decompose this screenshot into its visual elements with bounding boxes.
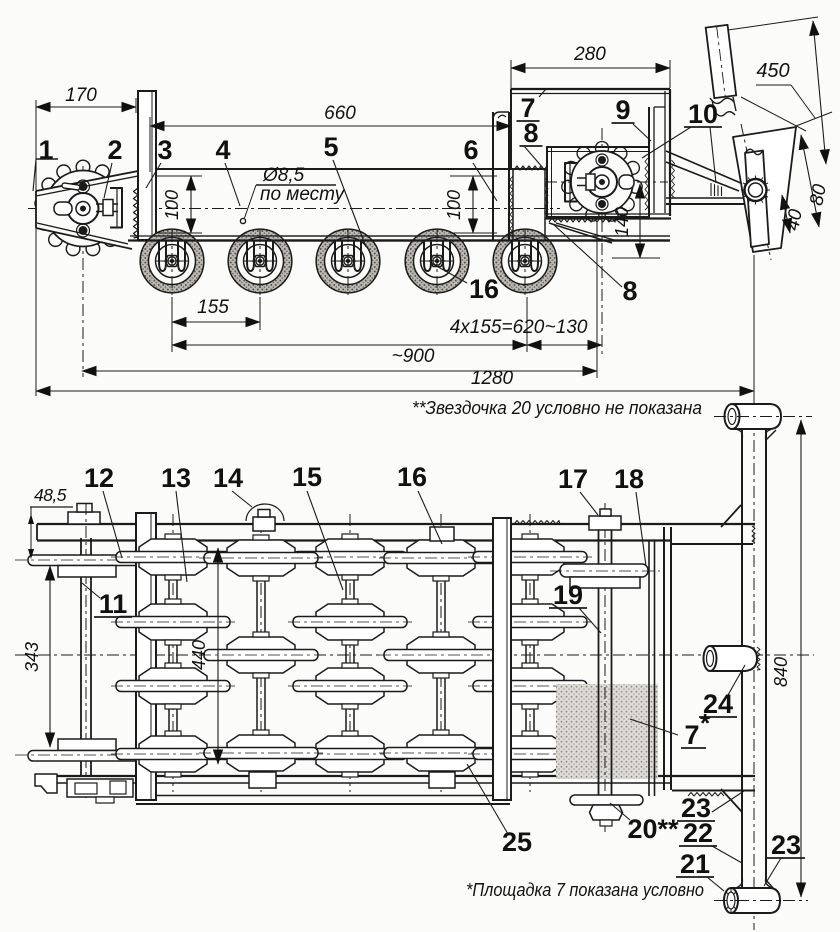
svg-text:11: 11 xyxy=(99,589,128,619)
svg-text:170: 170 xyxy=(65,85,97,106)
svg-text:450: 450 xyxy=(756,60,789,82)
svg-text:4: 4 xyxy=(215,135,230,165)
svg-text:155: 155 xyxy=(197,297,229,318)
svg-text:660: 660 xyxy=(324,103,356,124)
svg-text:21: 21 xyxy=(680,849,710,879)
svg-text:48,5: 48,5 xyxy=(34,485,67,505)
svg-text:16: 16 xyxy=(469,274,499,304)
svg-text:4x155=620: 4x155=620 xyxy=(450,317,545,338)
svg-text:100: 100 xyxy=(444,190,464,220)
svg-text:по месту: по месту xyxy=(260,184,346,205)
svg-text:**Звездочка 20 условно не пока: **Звездочка 20 условно не показана xyxy=(412,397,702,418)
svg-text:7: 7 xyxy=(684,720,699,750)
svg-text:100: 100 xyxy=(162,190,182,220)
svg-text:*: * xyxy=(700,708,711,738)
svg-text:*Площадка 7 показана условно: *Площадка 7 показана условно xyxy=(466,879,704,900)
svg-text:~900: ~900 xyxy=(392,346,435,367)
svg-text:8: 8 xyxy=(622,276,637,306)
svg-text:3: 3 xyxy=(157,135,172,165)
svg-text:1280: 1280 xyxy=(471,368,514,389)
svg-text:280: 280 xyxy=(573,44,606,65)
svg-text:16: 16 xyxy=(397,462,427,492)
svg-text:19: 19 xyxy=(553,580,583,610)
svg-text:23: 23 xyxy=(681,793,711,823)
svg-text:17: 17 xyxy=(558,464,588,494)
svg-text:2: 2 xyxy=(107,135,122,165)
svg-text:440: 440 xyxy=(189,640,209,670)
svg-text:23: 23 xyxy=(771,830,801,860)
svg-text:15: 15 xyxy=(292,462,322,492)
svg-text:14: 14 xyxy=(213,463,243,493)
svg-text:40: 40 xyxy=(782,207,807,232)
svg-text:840: 840 xyxy=(771,657,791,687)
svg-text:8: 8 xyxy=(523,118,538,148)
svg-text:140: 140 xyxy=(612,207,632,237)
svg-text:80: 80 xyxy=(806,182,831,207)
svg-text:18: 18 xyxy=(614,464,644,494)
svg-text:~130: ~130 xyxy=(545,317,588,338)
svg-text:12: 12 xyxy=(84,463,114,493)
svg-text:9: 9 xyxy=(615,95,630,125)
svg-text:6: 6 xyxy=(463,135,478,165)
svg-text:20**: 20** xyxy=(627,814,679,844)
svg-text:10: 10 xyxy=(688,99,718,129)
svg-text:Ø8,5: Ø8,5 xyxy=(262,165,305,186)
svg-text:1: 1 xyxy=(38,135,53,165)
svg-text:5: 5 xyxy=(323,132,338,162)
svg-text:13: 13 xyxy=(161,463,191,493)
svg-text:343: 343 xyxy=(22,642,42,672)
